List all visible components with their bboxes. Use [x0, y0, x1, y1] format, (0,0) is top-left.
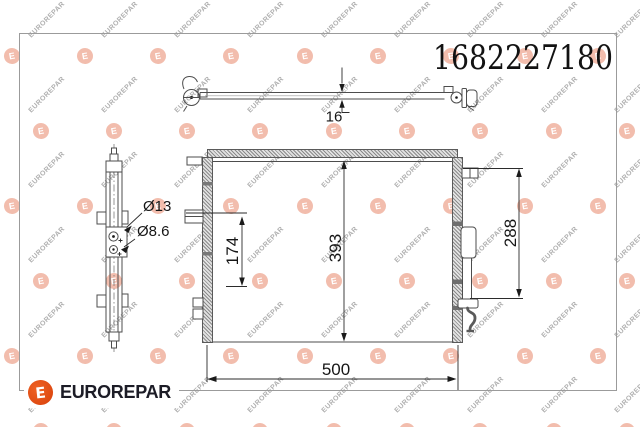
drier-pipe [468, 308, 476, 330]
depth-label: 16 [326, 109, 343, 126]
brand-block: E EUROREPAR [24, 376, 179, 408]
large-port-label: Ø13 [143, 198, 171, 215]
top-view [183, 76, 477, 111]
technical-drawing: 16 Ø13 Ø8.6 [0, 0, 640, 427]
dimension-depth: 16 [326, 68, 350, 126]
left-height-label: 174 [223, 237, 242, 265]
part-number: 1682227180 [433, 38, 613, 78]
drawing-canvas: EUROREPAREEUROREPAREEUROREPAREEUROREPARE… [0, 0, 640, 427]
port-labels: Ø13 Ø8.6 [121, 198, 171, 253]
receiver-drier [458, 227, 478, 331]
brand-logo-letter: E [34, 383, 46, 402]
dimension-left-height: 174 [186, 213, 247, 287]
dimension-overall-width: 500 [207, 345, 458, 390]
overall-width-label: 500 [322, 360, 350, 379]
small-port-label: Ø8.6 [137, 223, 170, 240]
core-height-label: 393 [326, 234, 345, 262]
side-view [97, 144, 128, 352]
brand-logo: E [27, 378, 54, 405]
right-height-label: 288 [501, 219, 520, 247]
brand-name: EUROREPAR [60, 382, 171, 403]
dimension-core-height: 393 [326, 161, 347, 342]
